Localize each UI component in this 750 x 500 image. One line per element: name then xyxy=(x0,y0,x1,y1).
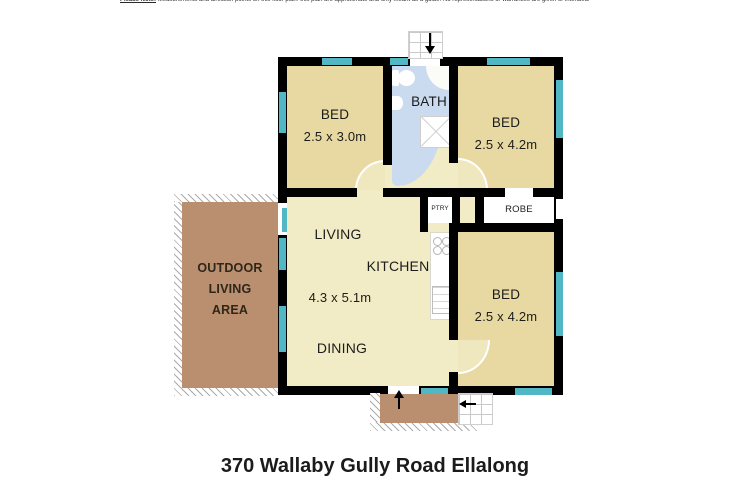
window xyxy=(556,80,563,138)
outdoor-hatch-border xyxy=(174,388,280,396)
cooktop-burner xyxy=(433,237,442,246)
address-title: 370 Wallaby Gully Road Ellalong xyxy=(0,455,750,478)
outdoor-living-label: OUTDOOR LIVING AREA xyxy=(182,258,278,321)
bedroom-1-label: BED 2.5 x 3.0m xyxy=(287,104,383,148)
arrow-head xyxy=(425,46,435,54)
window xyxy=(487,58,530,65)
wall xyxy=(449,66,458,163)
window xyxy=(279,238,286,270)
shower-icon xyxy=(420,116,452,148)
toilet-icon xyxy=(398,70,415,86)
door-opening xyxy=(556,199,563,219)
window xyxy=(279,306,286,352)
window xyxy=(279,92,286,133)
room-dims: 2.5 x 3.0m xyxy=(287,126,383,148)
steps xyxy=(458,393,493,425)
outdoor-line-2: LIVING xyxy=(182,279,278,300)
floorplan-page: Please Note: Measurements and direction … xyxy=(0,0,750,500)
floor-plan: OUTDOOR LIVING AREA xyxy=(0,0,750,500)
wall xyxy=(449,223,563,232)
wall xyxy=(278,188,357,197)
room-dims: 2.5 x 4.2m xyxy=(458,306,554,328)
arrow-head xyxy=(394,390,404,398)
wall xyxy=(449,232,458,340)
living-label: LIVING xyxy=(292,226,384,242)
outdoor-line-1: OUTDOOR xyxy=(182,258,278,279)
dining-label: DINING xyxy=(292,340,392,356)
robe-label: ROBE xyxy=(484,204,554,215)
pantry-label: PTRY xyxy=(428,205,452,212)
arrow-head xyxy=(459,400,466,408)
room-name: BED xyxy=(458,112,554,134)
living-dims-label: 4.3 x 5.1m xyxy=(290,290,390,305)
wall xyxy=(449,372,458,395)
room-name: BED xyxy=(458,284,554,306)
room-name: BED xyxy=(287,104,383,126)
wall xyxy=(383,188,423,197)
bedroom-2-label: BED 2.5 x 4.2m xyxy=(458,112,554,156)
step-arrow-left-icon xyxy=(459,400,477,408)
window xyxy=(282,208,287,232)
entry-arrow-down-icon xyxy=(424,33,436,55)
arrow-stem xyxy=(466,403,476,405)
wall xyxy=(428,188,452,197)
outdoor-line-3: AREA xyxy=(182,300,278,321)
bath-label: BATH xyxy=(400,94,458,109)
window xyxy=(322,58,352,65)
wall xyxy=(420,188,428,232)
entry-arrow-up-icon xyxy=(393,390,405,410)
cooktop-burner xyxy=(433,246,442,255)
robe-door-opening xyxy=(505,188,533,197)
outdoor-hatch-border xyxy=(174,194,280,202)
window xyxy=(390,58,408,65)
deck xyxy=(380,394,458,423)
arrow-stem xyxy=(429,33,431,46)
arrow-stem xyxy=(398,398,400,409)
kitchen-label: KITCHEN xyxy=(348,258,448,274)
wall xyxy=(383,57,392,165)
window xyxy=(515,388,552,395)
window xyxy=(556,272,563,336)
wall xyxy=(475,188,484,223)
room-dims: 2.5 x 4.2m xyxy=(458,134,554,156)
bedroom-3-label: BED 2.5 x 4.2m xyxy=(458,284,554,328)
